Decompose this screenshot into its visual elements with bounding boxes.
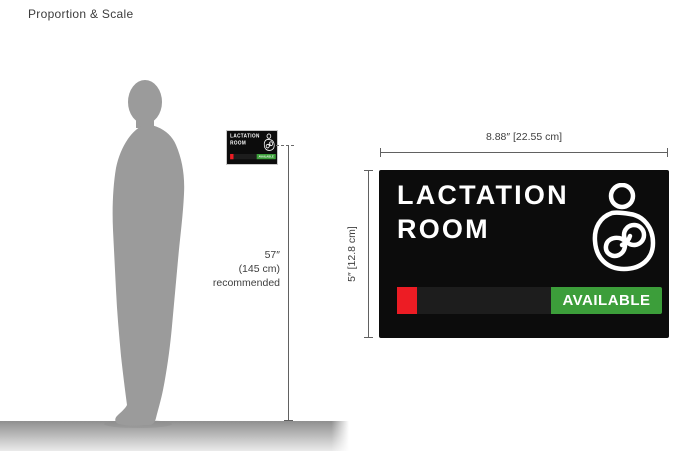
sign-height-bottom-tick bbox=[364, 337, 373, 338]
sign-height-label: 5″ [12.8 cm] bbox=[345, 194, 359, 314]
mount-height-bottom-tick bbox=[284, 420, 293, 421]
mount-height-value: 57″ bbox=[180, 248, 280, 262]
mount-height-note: recommended bbox=[180, 276, 280, 290]
status-badge-available: AVAILABLE bbox=[257, 154, 276, 159]
availability-slider: AVAILABLE bbox=[230, 154, 276, 159]
sign-title: LACTATION ROOM bbox=[397, 178, 569, 246]
slider-track bbox=[234, 154, 257, 159]
slider-knob-red bbox=[397, 287, 417, 314]
lactation-room-sign-mini: LACTATION ROOM AVAILABLE bbox=[227, 131, 277, 164]
sign-height-top-tick bbox=[364, 170, 373, 171]
page-title: Proportion & Scale bbox=[28, 7, 133, 21]
breastfeeding-icon bbox=[592, 183, 656, 273]
sign-height-dimension-line bbox=[368, 170, 369, 337]
proportion-scale-diagram: Proportion & Scale LACTATION ROOM bbox=[0, 0, 679, 451]
mini-lactation-sign: LACTATION ROOM AVAILABLE bbox=[227, 131, 277, 164]
sign-title-line2: ROOM bbox=[397, 212, 569, 246]
status-badge-available: AVAILABLE bbox=[551, 287, 662, 314]
sign-title: LACTATION ROOM bbox=[230, 133, 260, 146]
leader-dashed-line bbox=[276, 145, 294, 146]
slider-track bbox=[417, 287, 551, 314]
sign-width-label: 8.88″ [22.55 cm] bbox=[379, 130, 669, 144]
sign-width-right-tick bbox=[667, 148, 668, 157]
availability-slider: AVAILABLE bbox=[397, 287, 662, 314]
mount-height-dimension-line bbox=[288, 145, 289, 421]
mount-height-metric: (145 cm) bbox=[180, 262, 280, 276]
breastfeeding-icon bbox=[264, 134, 275, 152]
sign-title-line1: LACTATION bbox=[230, 133, 260, 140]
sign-width-left-tick bbox=[380, 148, 381, 157]
lactation-room-sign: LACTATION ROOM AVAILABLE bbox=[379, 170, 669, 338]
sign-title-line2: ROOM bbox=[230, 139, 260, 146]
sign-width-dimension-line bbox=[380, 152, 668, 153]
sign-title-line1: LACTATION bbox=[397, 178, 569, 212]
mount-height-label: 57″ (145 cm) recommended bbox=[180, 248, 280, 290]
